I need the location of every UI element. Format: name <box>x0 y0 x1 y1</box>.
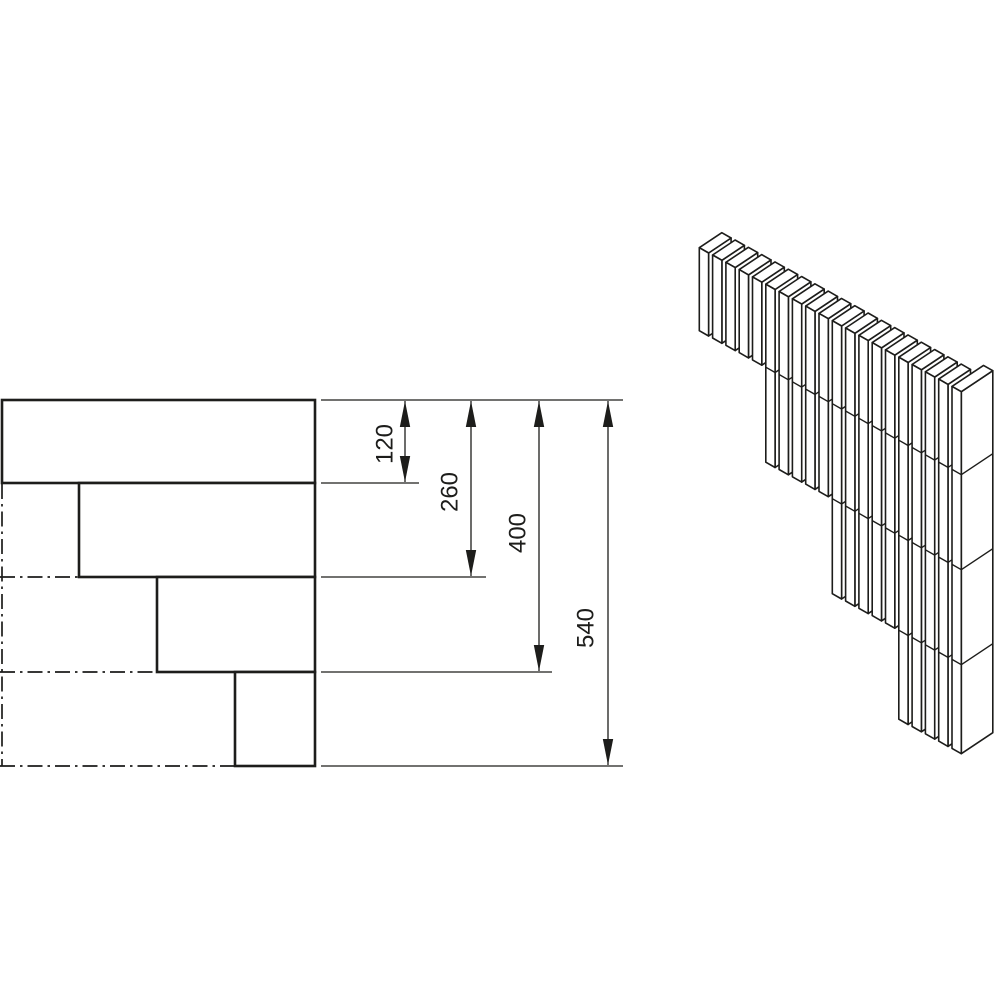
dimension-annotations: 120260400540 <box>321 400 623 766</box>
row-outline <box>2 400 315 483</box>
slat-front-face <box>846 328 855 606</box>
dimension-120: 120 <box>321 401 419 483</box>
iso-slat <box>952 365 993 753</box>
dimension-arrowhead <box>466 550 476 576</box>
row-outline <box>157 577 315 672</box>
slat-front-face <box>939 379 948 746</box>
slat-row <box>157 577 315 672</box>
slat-front-face <box>792 299 801 482</box>
dimension-label: 400 <box>504 513 531 553</box>
slat-front-face <box>952 386 961 753</box>
dimension-label: 540 <box>572 608 599 648</box>
dimension-arrowhead <box>466 401 476 427</box>
slat-front-face <box>699 248 708 336</box>
dimension-400: 400 <box>321 401 552 672</box>
slat-front-face <box>912 365 921 732</box>
dimension-arrowhead <box>400 401 410 427</box>
dimension-arrowhead <box>603 739 613 765</box>
dimension-label: 260 <box>436 472 463 512</box>
slat-front-face <box>806 306 815 489</box>
row-outline <box>79 483 315 577</box>
slat-front-face <box>925 372 934 739</box>
front-elevation-view <box>2 400 315 766</box>
isometric-view <box>699 233 993 754</box>
slat-front-face <box>713 255 722 343</box>
slat-side-face <box>961 371 993 754</box>
slat-row <box>79 483 315 577</box>
slat-front-face <box>832 321 841 599</box>
slat-front-face <box>899 357 908 724</box>
row-outline <box>235 672 315 766</box>
technical-drawing: 120260400540 <box>0 0 1000 1000</box>
slat-front-face <box>726 262 735 350</box>
dimension-label: 120 <box>371 424 398 464</box>
slat-front-face <box>766 284 775 467</box>
slat-front-face <box>753 277 762 365</box>
drawing-canvas: 120260400540 <box>0 0 1000 1000</box>
slat-row <box>2 400 315 483</box>
slat-front-face <box>819 313 828 496</box>
dimension-arrowhead <box>534 645 544 671</box>
slat-front-face <box>872 343 881 621</box>
slat-front-face <box>739 270 748 358</box>
dimension-arrowhead <box>534 401 544 427</box>
slat-row <box>235 672 315 766</box>
slat-front-face <box>779 292 788 475</box>
slat-front-face <box>886 350 895 628</box>
dimension-arrowhead <box>603 401 613 427</box>
dimension-260: 260 <box>321 401 486 577</box>
dimension-arrowhead <box>400 456 410 482</box>
slat-front-face <box>859 335 868 613</box>
dimension-540: 540 <box>321 401 623 766</box>
